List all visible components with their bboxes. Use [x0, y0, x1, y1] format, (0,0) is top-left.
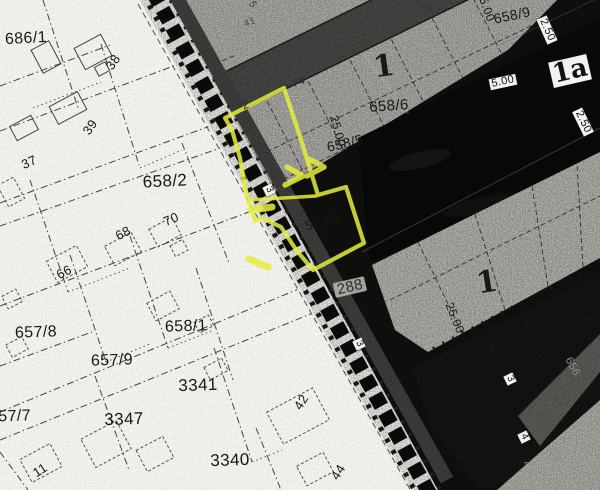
label-parcel-658-1: 658/1 [165, 318, 208, 335]
label-parcel-657-9: 657/9 [91, 352, 134, 369]
label-marker-3-rail-upper: 3 [262, 183, 275, 196]
label-house-44: 44 [328, 462, 347, 482]
label-house-41: 41 [243, 16, 257, 29]
label-parcel-288: 288 [333, 276, 368, 298]
cadastral-map-scan: 686/1383937658/2706866657/8658/1657/9334… [0, 0, 600, 490]
label-parcel-3340: 3340 [210, 451, 250, 469]
map-labels-layer: 686/1383937658/2706866657/8658/1657/9334… [0, 0, 600, 490]
label-house-42: 42 [291, 392, 310, 412]
label-dim-2-50-b: 2.50 [572, 107, 594, 136]
label-marker-3-east: 3 [503, 372, 516, 385]
label-parcel-658-2: 658/2 [142, 171, 187, 190]
label-dim-25-00-top: 25.00 [475, 0, 497, 23]
label-house-38: 38 [103, 52, 122, 72]
label-ghost-656: 656 [563, 356, 582, 378]
label-house-39: 39 [80, 117, 99, 137]
label-house-37: 37 [19, 153, 38, 171]
label-block-1a: 1a [548, 54, 592, 88]
label-dim-5-00: 5.00 [489, 74, 518, 90]
label-dim-25-00-lower: 25.00 [443, 301, 466, 335]
label-house-68: 68 [113, 224, 133, 243]
label-block-1-lower: 1 [474, 267, 499, 300]
label-parcel-657-8: 657/8 [15, 324, 58, 341]
label-parcel-3347: 3347 [104, 410, 144, 428]
label-tick-5-top: 5 [246, 0, 258, 10]
label-mark-plus: + [323, 229, 329, 239]
label-parcel-3341: 3341 [178, 376, 218, 394]
label-parcel-686-1: 686/1 [5, 30, 48, 48]
label-parcel-657-7: 657/7 [0, 408, 31, 425]
label-parcel-658-9: 658/9 [492, 4, 531, 25]
label-dim-2-50-a: 2.50 [536, 15, 557, 44]
label-house-74: 74 [291, 76, 307, 90]
label-house-70: 70 [161, 210, 180, 228]
label-parcel-658-6: 658/6 [369, 97, 409, 115]
label-tick-3: 3 [487, 342, 496, 354]
label-marker-4: 4 [517, 430, 530, 443]
label-house-66: 66 [54, 263, 74, 282]
label-marker-3-rail-mid: 3 [352, 337, 365, 350]
label-house-76: 76 [355, 38, 370, 52]
label-block-1-upper: 1 [372, 51, 397, 84]
label-house-78: 78 [419, 1, 435, 16]
label-house-11: 11 [30, 461, 49, 480]
label-ghost-458: 458 [520, 460, 537, 480]
label-house-72: 2 [241, 100, 251, 112]
label-tick-5: 5 [522, 316, 532, 329]
label-ghost-320: 320 [546, 445, 563, 465]
